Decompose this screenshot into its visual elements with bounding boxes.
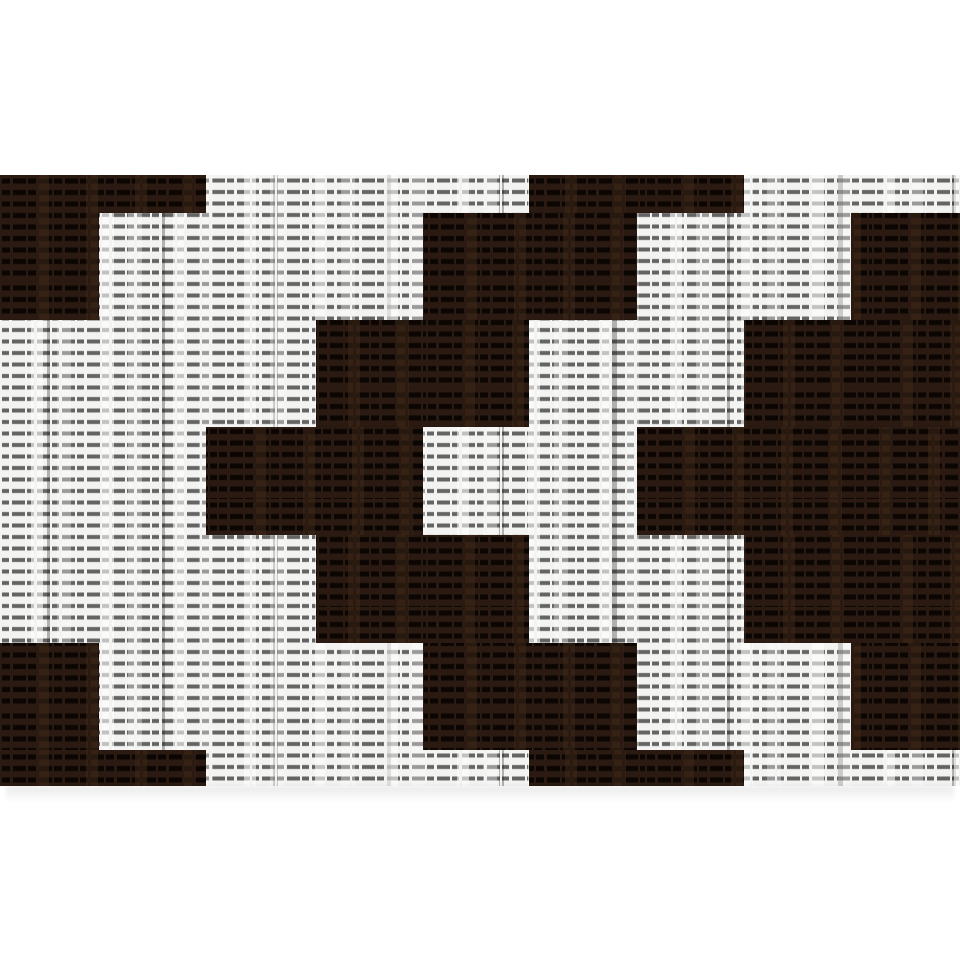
fabric-dark-block — [851, 213, 960, 320]
fabric-dark-block — [423, 643, 637, 750]
fabric-dark-block — [744, 535, 960, 643]
fabric-dark-block — [316, 320, 529, 427]
fabric-dark-block — [0, 213, 99, 320]
fabric-swatch-photo — [0, 175, 960, 786]
fabric-dark-block — [0, 750, 206, 786]
fabric-dark-block — [0, 175, 206, 213]
fabric-dark-block — [206, 427, 423, 535]
fabric-dark-block — [423, 213, 637, 320]
page-background — [0, 0, 960, 960]
fabric-dark-block — [529, 750, 744, 786]
fabric-dark-block — [744, 320, 960, 427]
fabric-dark-block — [0, 643, 99, 750]
fabric-dark-block — [637, 427, 960, 535]
fabric-dark-block — [851, 643, 960, 750]
fabric-dark-block — [529, 175, 744, 213]
drop-shadow — [6, 786, 954, 802]
fabric-dark-block — [316, 535, 529, 643]
